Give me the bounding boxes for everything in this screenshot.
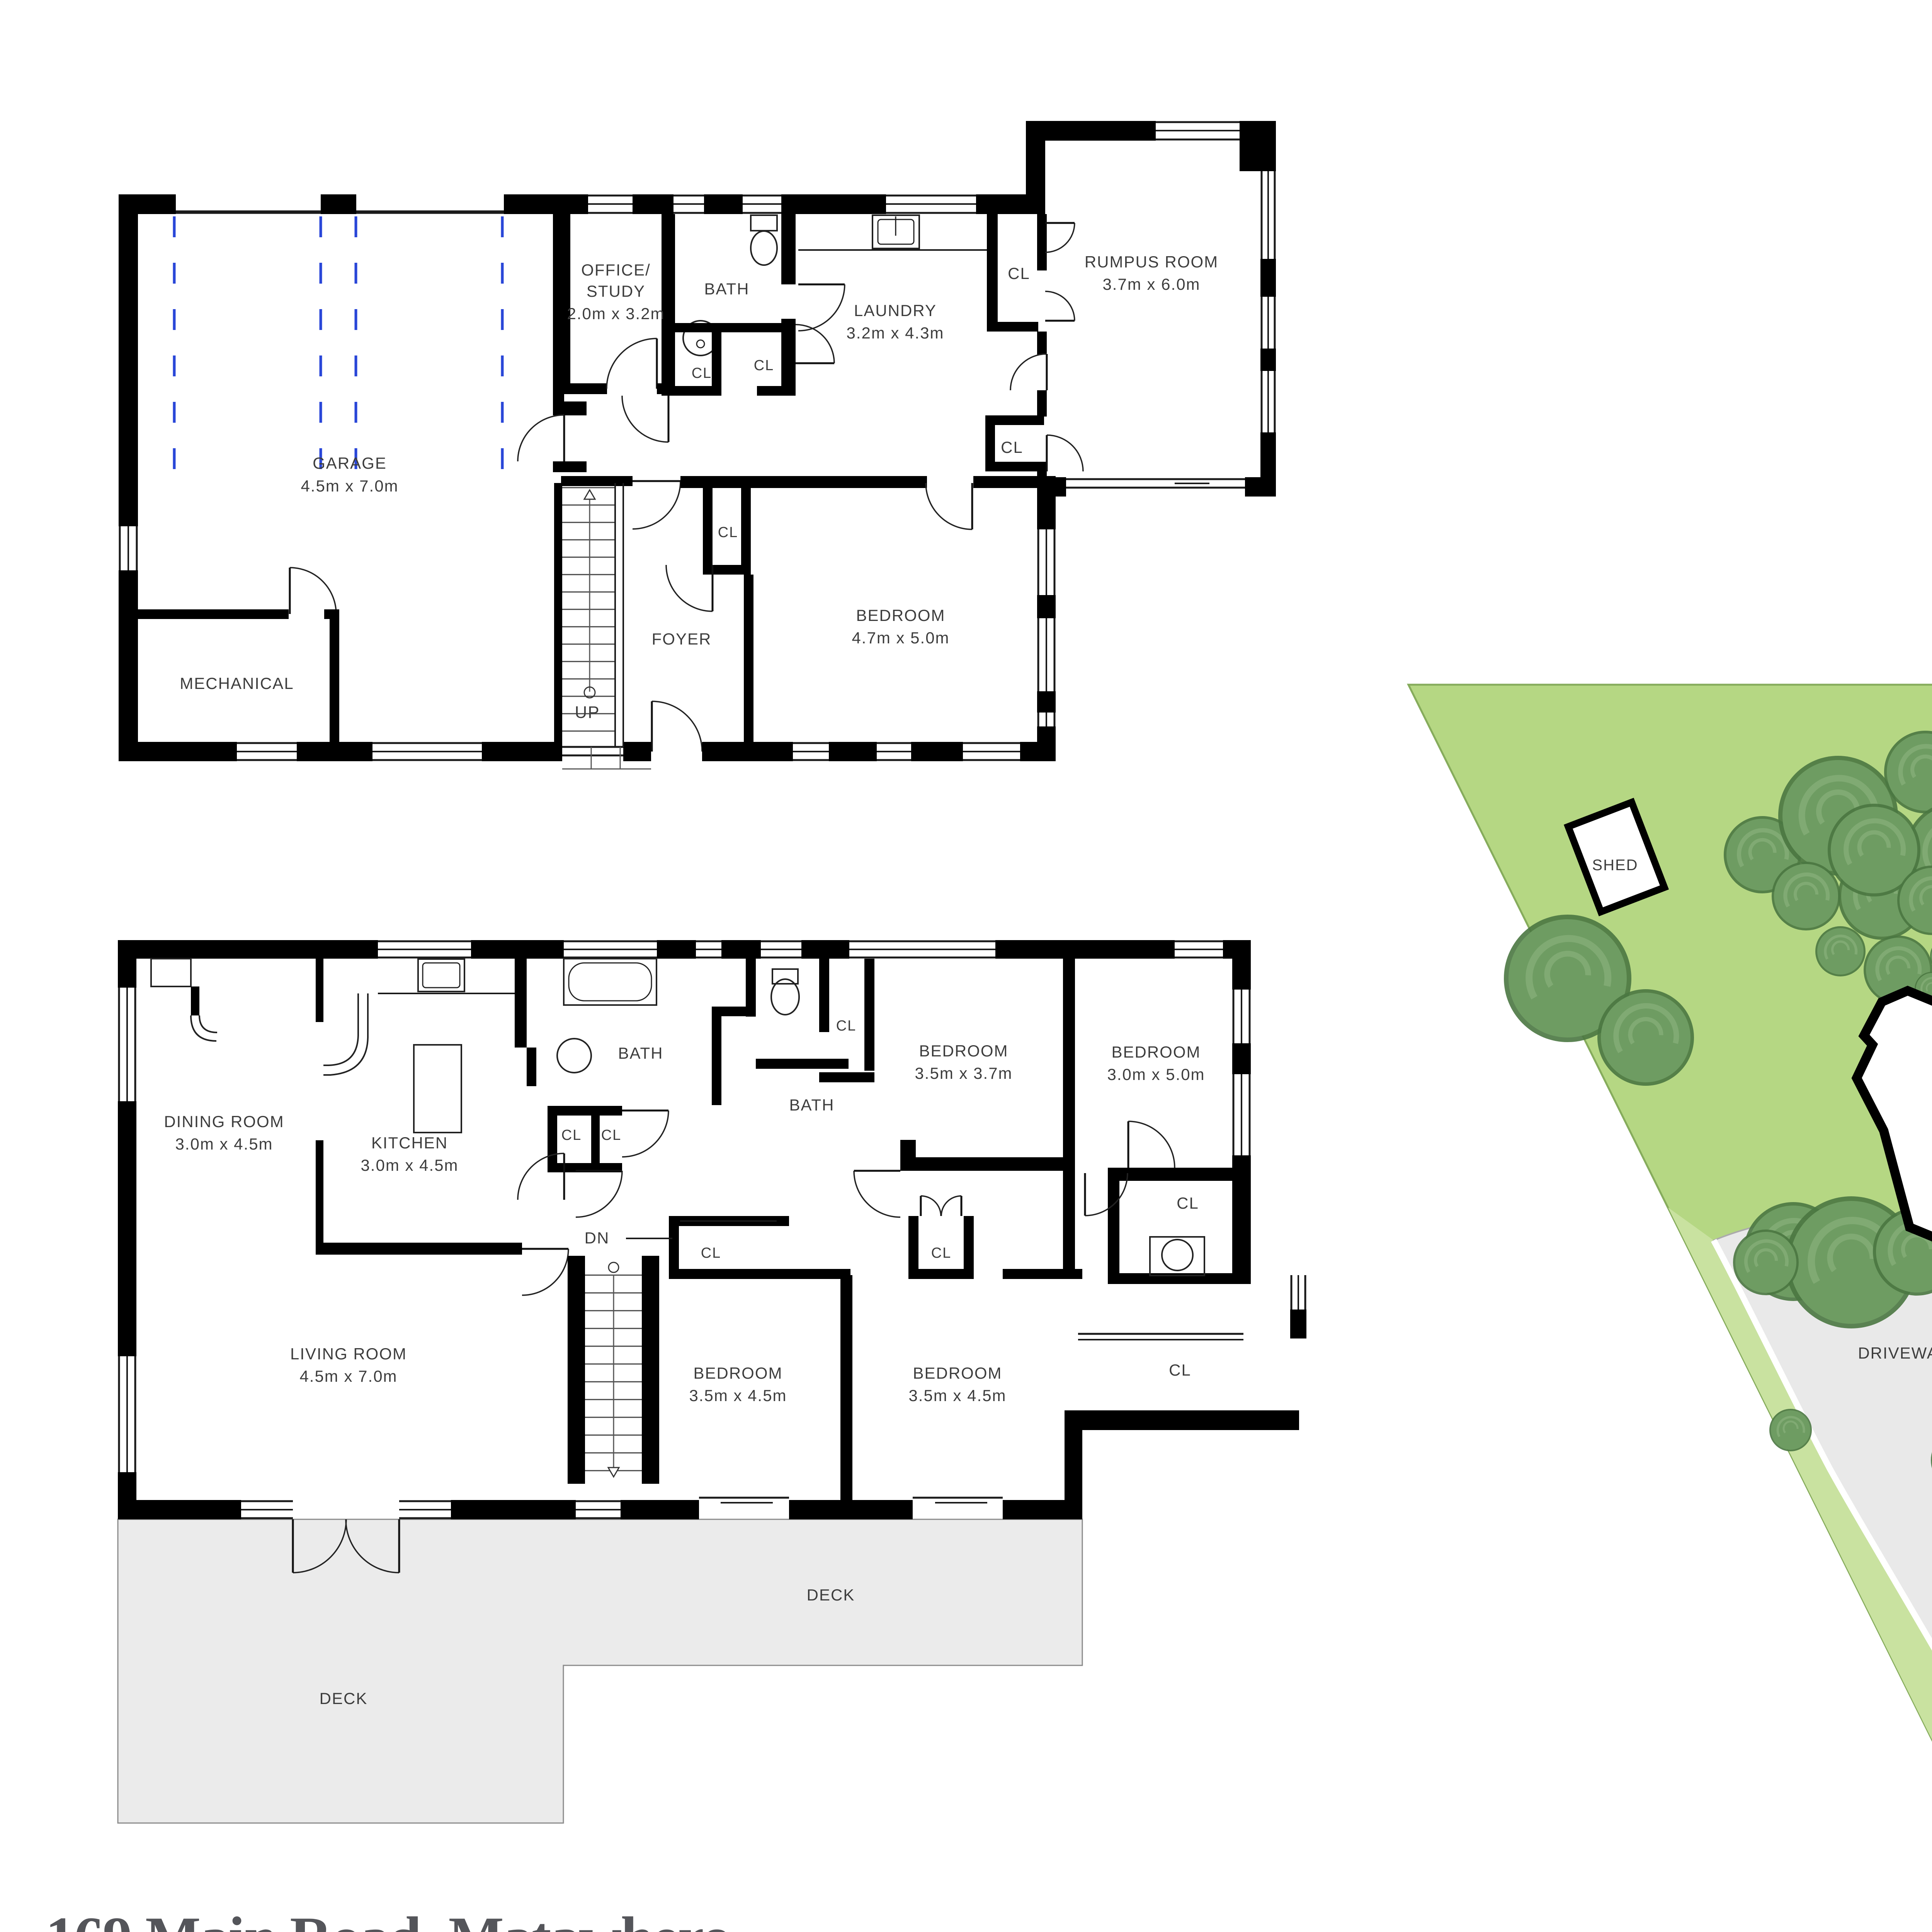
svg-text:DRIVEWAY: DRIVEWAY — [1858, 1344, 1932, 1362]
svg-text:KITCHEN: KITCHEN — [371, 1134, 448, 1152]
svg-text:CL: CL — [1001, 438, 1023, 456]
svg-text:3.0m x 4.5m: 3.0m x 4.5m — [175, 1135, 273, 1153]
svg-text:DINING ROOM: DINING ROOM — [164, 1112, 284, 1131]
svg-text:CL: CL — [561, 1127, 582, 1143]
svg-text:RUMPUS ROOM: RUMPUS ROOM — [1085, 253, 1218, 271]
svg-text:DECK: DECK — [320, 1689, 368, 1708]
svg-text:CL: CL — [701, 1245, 721, 1261]
svg-text:DECK: DECK — [807, 1586, 855, 1604]
svg-text:BEDROOM: BEDROOM — [913, 1364, 1002, 1382]
svg-text:OFFICE/: OFFICE/ — [581, 261, 651, 279]
svg-text:3.5m x 3.7m: 3.5m x 3.7m — [915, 1064, 1012, 1082]
svg-text:3.0m x 4.5m: 3.0m x 4.5m — [361, 1156, 458, 1174]
svg-text:BATH: BATH — [704, 280, 750, 298]
svg-text:CL: CL — [601, 1127, 622, 1143]
svg-text:CL: CL — [1169, 1361, 1191, 1379]
svg-text:CL: CL — [754, 357, 774, 374]
svg-text:STUDY: STUDY — [587, 282, 645, 300]
svg-text:4.7m x 5.0m: 4.7m x 5.0m — [852, 629, 949, 647]
svg-text:3.2m x 4.3m: 3.2m x 4.3m — [846, 324, 944, 342]
svg-text:SHED: SHED — [1592, 857, 1638, 874]
svg-text:CL: CL — [718, 524, 738, 541]
svg-text:LAUNDRY: LAUNDRY — [854, 301, 937, 320]
svg-text:CL: CL — [1008, 264, 1030, 282]
svg-text:4.5m x 7.0m: 4.5m x 7.0m — [301, 477, 398, 495]
svg-text:CL: CL — [836, 1018, 857, 1034]
svg-text:DN: DN — [585, 1229, 610, 1247]
svg-text:BEDROOM: BEDROOM — [856, 606, 945, 624]
svg-text:UP: UP — [575, 703, 600, 722]
svg-text:CL: CL — [692, 365, 712, 381]
svg-text:3.5m x 4.5m: 3.5m x 4.5m — [689, 1386, 787, 1405]
svg-text:169 Main Road, Matawhero: 169 Main Road, Matawhero — [46, 1905, 731, 1932]
svg-text:BEDROOM: BEDROOM — [919, 1042, 1008, 1060]
svg-text:2.0m x 3.2m: 2.0m x 3.2m — [567, 304, 665, 323]
svg-text:BEDROOM: BEDROOM — [693, 1364, 782, 1382]
svg-text:GARAGE: GARAGE — [313, 454, 387, 472]
svg-text:MECHANICAL: MECHANICAL — [180, 674, 294, 692]
svg-text:BEDROOM: BEDROOM — [1111, 1043, 1201, 1061]
svg-text:4.5m x 7.0m: 4.5m x 7.0m — [299, 1367, 397, 1385]
svg-text:BATH: BATH — [618, 1044, 663, 1062]
svg-text:CL: CL — [1177, 1194, 1199, 1212]
svg-text:BATH: BATH — [789, 1096, 835, 1114]
svg-text:FOYER: FOYER — [652, 630, 712, 648]
svg-text:3.0m x 5.0m: 3.0m x 5.0m — [1107, 1065, 1205, 1083]
svg-text:3.7m x 6.0m: 3.7m x 6.0m — [1102, 275, 1200, 293]
svg-text:3.5m x 4.5m: 3.5m x 4.5m — [908, 1386, 1006, 1405]
svg-text:LIVING ROOM: LIVING ROOM — [290, 1345, 407, 1363]
svg-text:CL: CL — [931, 1245, 952, 1261]
